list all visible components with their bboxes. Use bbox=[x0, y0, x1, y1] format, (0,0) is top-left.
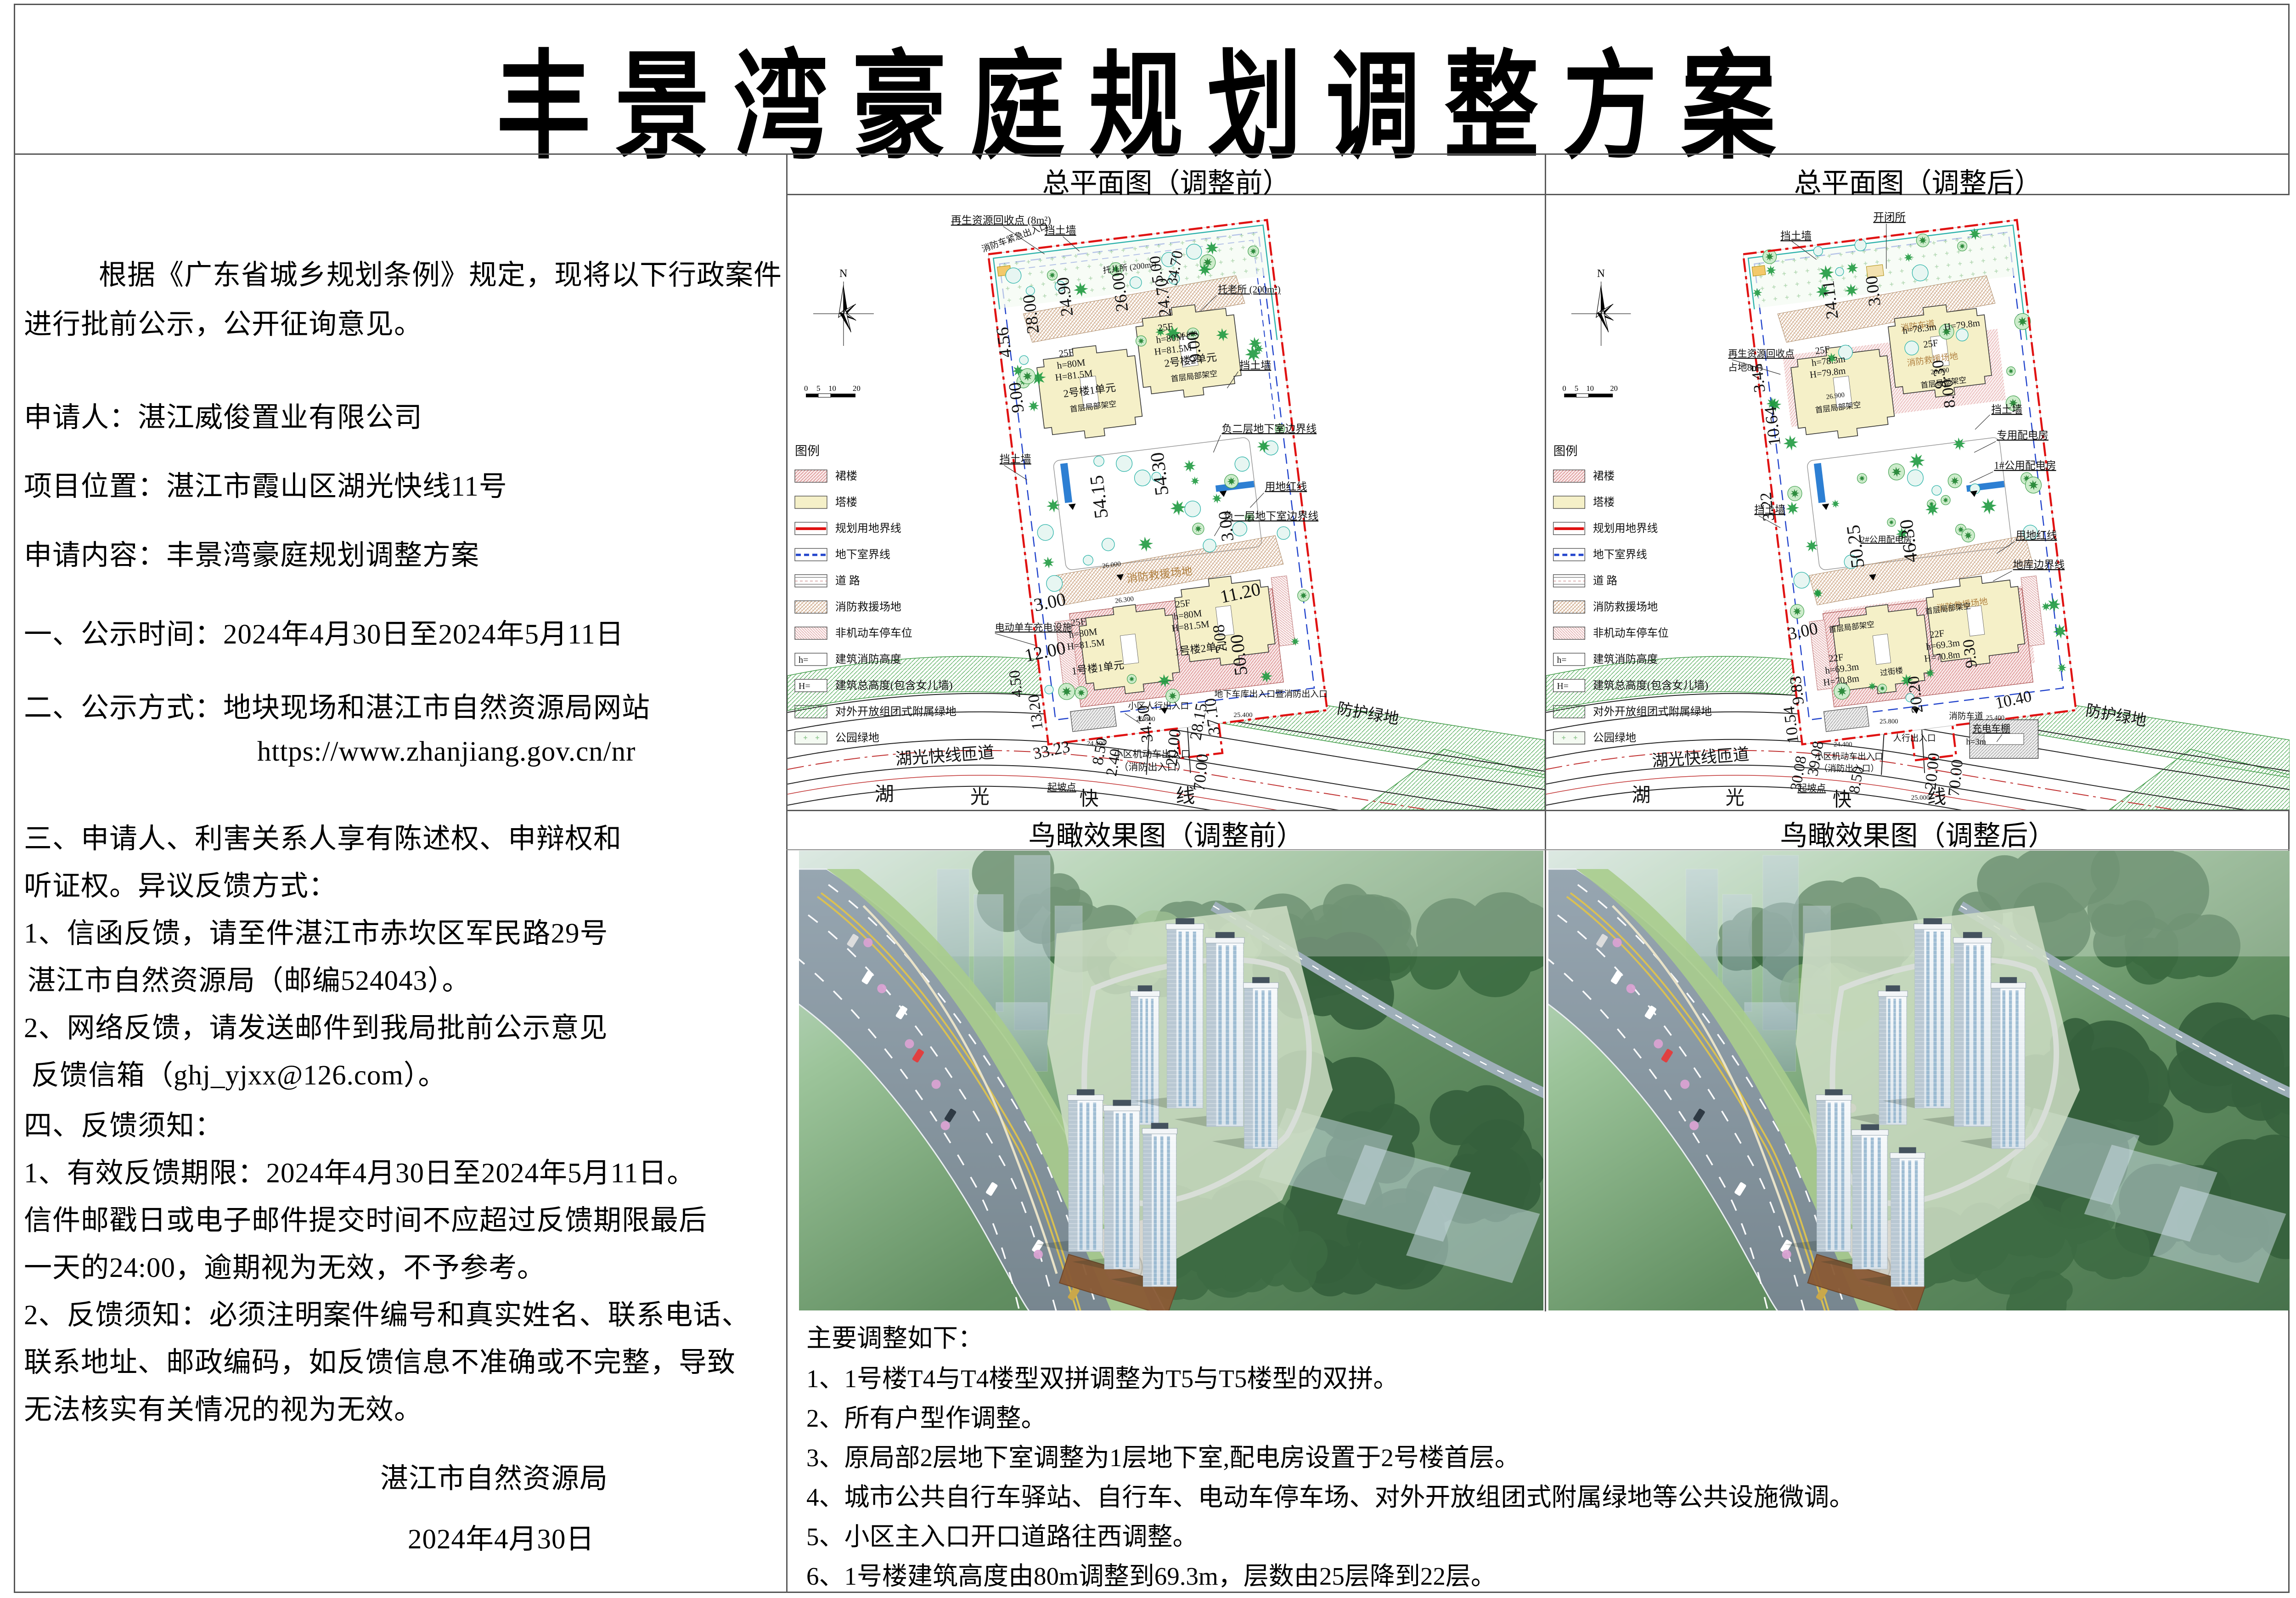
svg-text:对外开放组团式附属绿地: 对外开放组团式附属绿地 bbox=[835, 706, 957, 718]
legend-item: 消防救援场地 bbox=[1553, 601, 1658, 613]
plan-annotation: 挡土墙 bbox=[1045, 225, 1076, 236]
svg-text:h=: h= bbox=[1557, 655, 1567, 665]
plan-annotation: 70.00 bbox=[1190, 753, 1212, 792]
legend-item: 规划用地界线 bbox=[795, 522, 901, 535]
panel-title-render-before: 鸟瞰效果图（调整前） bbox=[788, 813, 1545, 853]
plan-annotation: 人行出入口 bbox=[1893, 733, 1936, 743]
notice-line: 申请人：湛江威俊置业有限公司 bbox=[24, 394, 422, 435]
legend-item: 公园绿地 bbox=[795, 732, 879, 744]
adjustment-item: 1、1号楼T4与T4楼型双拼调整为T5与T5楼型的双拼。 bbox=[806, 1358, 1398, 1395]
plan-annotation: 25.400 bbox=[1233, 711, 1252, 719]
panel-title-site-after: 总平面图（调整后） bbox=[1546, 161, 2290, 201]
plan-annotation: 挡土墙 bbox=[1239, 360, 1271, 371]
plan-annotation: 湖 bbox=[1632, 785, 1650, 806]
svg-text:非机动车停车位: 非机动车停车位 bbox=[1593, 627, 1669, 639]
svg-text:N: N bbox=[1597, 268, 1605, 280]
svg-text:地下室界线: 地下室界线 bbox=[1593, 548, 1647, 561]
plan-annotation: 25F bbox=[1175, 597, 1191, 610]
svg-text:规划用地界线: 规划用地界线 bbox=[835, 522, 901, 535]
plan-annotation: 用地红线 bbox=[2015, 530, 2057, 541]
panel-title-render-after: 鸟瞰效果图（调整后） bbox=[1546, 813, 2290, 853]
notice-line: 二、公示方式：地块现场和湛江市自然资源局网站 bbox=[24, 684, 650, 725]
plan-annotation: 1#公用配电房 bbox=[1994, 460, 2056, 471]
svg-text:20: 20 bbox=[1610, 384, 1618, 393]
plan-annotation: 25F bbox=[1815, 344, 1831, 356]
plan-annotation: 挡土墙 bbox=[1991, 404, 2022, 415]
notice-line: 湛江市自然资源局（邮编524043）。 bbox=[28, 957, 471, 998]
plan-annotation: 22F bbox=[1828, 652, 1844, 664]
plan-annotation: 9.00 bbox=[1005, 381, 1028, 414]
svg-text:裙楼: 裙楼 bbox=[1593, 470, 1615, 482]
adjustment-item: 6、1号楼建筑高度由80m调整到69.3m，层数由25层降到22层。 bbox=[806, 1555, 1496, 1592]
plan-annotation: 起坡点 bbox=[1047, 782, 1076, 793]
plan-annotation: 地库边界线 bbox=[2013, 559, 2065, 570]
adjustment-item: 4、城市公共自行车驿站、自行车、电动车停车场、对外开放组团式附属绿地等公共设施微… bbox=[806, 1476, 1855, 1513]
plan-annotation: 4.50 bbox=[1006, 669, 1026, 699]
adjustments-heading: 主要调整如下： bbox=[806, 1317, 983, 1354]
plan-annotation: 光 bbox=[1726, 787, 1745, 808]
notice-line: 申请内容：丰景湾豪庭规划调整方案 bbox=[24, 532, 479, 573]
plan-annotation: 9.00 bbox=[1183, 331, 1206, 363]
legend-item: 地下室界线 bbox=[795, 548, 890, 561]
plan-annotation: 25F bbox=[1058, 346, 1074, 359]
notice-line: 1、有效反馈期限：2024年4月30日至2024年5月11日。 bbox=[24, 1150, 695, 1191]
svg-text:5: 5 bbox=[1575, 384, 1578, 393]
svg-text:建筑消防高度: 建筑消防高度 bbox=[1593, 653, 1658, 666]
notice-line: 进行批前公示，公开征询意见。 bbox=[24, 301, 422, 342]
notice-line: 反馈信箱（ghj_yjxx@126.com）。 bbox=[31, 1052, 446, 1093]
legend-item: 公园绿地 bbox=[1553, 732, 1637, 744]
plan-annotation: 22F bbox=[1929, 628, 1945, 640]
plan-annotation: 挡土墙 bbox=[1000, 453, 1031, 465]
aerial-render-before bbox=[799, 851, 1543, 1310]
svg-text:建筑总高度(包含女儿墙): 建筑总高度(包含女儿墙) bbox=[1593, 679, 1708, 692]
notice-body: 根据《广东省城乡规划条例》规定，现将以下行政案件进行批前公示，公开征询意见。申请… bbox=[0, 0, 786, 1598]
plan-annotation: 负二层地下室边界线 bbox=[1221, 423, 1317, 435]
plan-annotation: 3.00 bbox=[1215, 510, 1238, 542]
legend-item: 裙楼 bbox=[795, 470, 857, 482]
adjustment-item: 3、原局部2层地下室调整为1层地下室,配电房设置于2号楼首层。 bbox=[806, 1437, 1520, 1474]
notice-line: 项目位置：湛江市霞山区湖光快线11号 bbox=[24, 463, 507, 504]
svg-text:建筑总高度(包含女儿墙): 建筑总高度(包含女儿墙) bbox=[835, 679, 953, 692]
svg-text:规划用地界线: 规划用地界线 bbox=[1593, 522, 1658, 535]
plan-annotation: 开闭所 bbox=[1873, 211, 1906, 224]
notice-line: 一、公示时间：2024年4月30日至2024年5月11日 bbox=[24, 611, 624, 652]
notice-line: 根据《广东省城乡规划条例》规定，现将以下行政案件 bbox=[99, 252, 782, 293]
svg-text:图例: 图例 bbox=[1553, 444, 1578, 458]
notice-line: 联系地址、邮政编码，如反馈信息不准确或不完整，导致 bbox=[24, 1339, 736, 1380]
notice-line: 2、网络反馈，请发送邮件到我局批前公示意见 bbox=[24, 1005, 608, 1045]
svg-text:N: N bbox=[839, 268, 847, 280]
site-plan-before: 图例裙楼塔楼规划用地界线地下室界线道 路消防救援场地非机动车停车位h=建筑消防高… bbox=[788, 195, 1545, 810]
legend-item: 消防救援场地 bbox=[795, 601, 901, 613]
svg-text:0: 0 bbox=[804, 384, 808, 393]
svg-text:图例: 图例 bbox=[795, 444, 820, 458]
plan-annotation: 3.45 bbox=[1747, 362, 1769, 393]
plan-annotation: 4.56 bbox=[993, 326, 1016, 359]
legend-item: 对外开放组团式附属绿地 bbox=[1553, 706, 1712, 718]
plan-annotation: 消防车道 bbox=[1949, 711, 1983, 721]
svg-text:对外开放组团式附属绿地: 对外开放组团式附属绿地 bbox=[1593, 706, 1712, 718]
legend-item: 裙楼 bbox=[1553, 470, 1615, 482]
plan-annotation: 8.00 bbox=[1937, 378, 1959, 409]
plan-annotation: 9.30 bbox=[1959, 638, 1981, 669]
svg-text:消防救援场地: 消防救援场地 bbox=[835, 601, 901, 613]
divider-plan-bottom bbox=[786, 810, 2290, 811]
notice-line: 一天的24:00，逾期视为无效，不予参考。 bbox=[24, 1244, 546, 1285]
svg-text:H=: H= bbox=[1557, 681, 1569, 691]
notice-line: 无法核实有关情况的视为无效。 bbox=[24, 1386, 422, 1427]
svg-text:裙楼: 裙楼 bbox=[835, 470, 857, 482]
plan-annotation: 湖 bbox=[875, 784, 894, 805]
notice-line: 四、反馈须知： bbox=[24, 1102, 223, 1143]
plan-annotation: 25.400 bbox=[1986, 714, 2004, 722]
svg-text:非机动车停车位: 非机动车停车位 bbox=[835, 627, 912, 639]
plan-annotation: 再生资源回收点 bbox=[1728, 349, 1794, 359]
plan-annotation: 挡土墙 bbox=[1780, 230, 1812, 242]
notice-line: 听证权。异议反馈方式： bbox=[24, 863, 337, 903]
plan-annotation: 光 bbox=[970, 787, 990, 808]
notice-line: https://www.zhanjiang.gov.cn/nr bbox=[257, 736, 636, 768]
svg-text:道 路: 道 路 bbox=[835, 575, 860, 587]
plan-annotation: 专用配电房 bbox=[1997, 429, 2048, 441]
legend-item: 地下室界线 bbox=[1553, 548, 1647, 561]
svg-text:H=: H= bbox=[799, 681, 810, 691]
svg-text:0: 0 bbox=[1562, 384, 1566, 393]
plan-annotation: 25F bbox=[1070, 615, 1086, 628]
plan-annotation: 充电车棚 bbox=[1972, 723, 2010, 734]
svg-text:地下室界线: 地下室界线 bbox=[835, 548, 890, 561]
legend-item: 非机动车停车位 bbox=[795, 627, 912, 639]
legend-item: H=建筑总高度(包含女儿墙) bbox=[795, 679, 953, 692]
plan-annotation: 9.83 bbox=[1786, 675, 1807, 706]
notice-line: 湛江市自然资源局 bbox=[380, 1455, 608, 1496]
adjustment-item: 2、所有户型作调整。 bbox=[806, 1397, 1047, 1434]
svg-text:20: 20 bbox=[853, 384, 861, 393]
plan-annotation: 25F bbox=[1157, 321, 1173, 333]
notice-line: 1、信函反馈，请至件湛江市赤坎区军民路29号 bbox=[24, 910, 608, 951]
svg-text:塔楼: 塔楼 bbox=[835, 496, 857, 508]
plan-annotation: 电动单车充电设施 bbox=[995, 622, 1072, 633]
legend-item: 非机动车停车位 bbox=[1553, 627, 1669, 639]
svg-text:h=: h= bbox=[799, 655, 808, 665]
svg-text:公园绿地: 公园绿地 bbox=[1593, 732, 1636, 744]
legend-item: H=建筑总高度(包含女儿墙) bbox=[1553, 679, 1708, 692]
notice-line: 2024年4月30日 bbox=[408, 1516, 595, 1557]
plan-annotation: 24.400 bbox=[1834, 741, 1852, 748]
plan-annotation: 负一层地下室边界线 bbox=[1223, 510, 1318, 522]
svg-text:公园绿地: 公园绿地 bbox=[835, 732, 879, 744]
plan-annotation: 70.00 bbox=[1944, 758, 1966, 797]
plan-annotation: 20.00 bbox=[1921, 752, 1943, 791]
legend-item: 塔楼 bbox=[1553, 496, 1615, 508]
aerial-render-after bbox=[1548, 851, 2290, 1310]
plan-annotation: 托老所 (200m²) bbox=[1218, 284, 1280, 295]
plan-annotation: h=3m bbox=[1966, 737, 1986, 747]
plan-annotation: 地下车库出入口暨消防出入口 bbox=[1214, 689, 1328, 699]
plan-annotation: 快 bbox=[1080, 789, 1099, 810]
public-notice-board: 丰景湾豪庭规划调整方案 总平面图（调整前） 总平面图（调整后） 鸟瞰效果图（调整… bbox=[0, 0, 2296, 1598]
plan-annotation: 3.22 bbox=[1756, 491, 1778, 522]
svg-text:5: 5 bbox=[816, 384, 820, 393]
plan-annotation: 再生资源回收点 (8m²) bbox=[951, 215, 1051, 226]
panel-title-site-before: 总平面图（调整前） bbox=[788, 161, 1545, 201]
legend-item: 塔楼 bbox=[795, 496, 857, 508]
legend-item: h=建筑消防高度 bbox=[795, 653, 901, 666]
plan-annotation: 3.00 bbox=[1862, 275, 1885, 307]
adjustment-item: 5、小区主入口开口道路往西调整。 bbox=[806, 1516, 1198, 1553]
plan-annotation: 25F bbox=[1923, 338, 1939, 350]
svg-text:道 路: 道 路 bbox=[1593, 575, 1617, 587]
notice-line: 2、反馈须知：必须注明案件编号和真实姓名、联系电话、 bbox=[24, 1292, 750, 1333]
svg-text:塔楼: 塔楼 bbox=[1593, 496, 1615, 508]
plan-annotation: 用地红线 bbox=[1265, 481, 1307, 492]
plan-annotation: 25.800 bbox=[1880, 718, 1898, 725]
svg-text:消防救援场地: 消防救援场地 bbox=[1593, 601, 1658, 613]
svg-text:10: 10 bbox=[1586, 384, 1594, 393]
notice-line: 信件邮戳日或电子邮件提交时间不应超过反馈期限最后 bbox=[24, 1197, 707, 1238]
legend-item: h=建筑消防高度 bbox=[1553, 653, 1658, 666]
plan-annotation: 20.00 bbox=[1162, 728, 1184, 767]
site-plan-after: 图例裙楼塔楼规划用地界线地下室界线道 路消防救援场地非机动车停车位h=建筑消防高… bbox=[1546, 195, 2290, 810]
notice-line: 三、申请人、利害关系人享有陈述权、申辩权和 bbox=[24, 815, 622, 856]
svg-text:10: 10 bbox=[828, 384, 836, 393]
legend-item: 对外开放组团式附属绿地 bbox=[795, 706, 957, 718]
svg-text:建筑消防高度: 建筑消防高度 bbox=[835, 653, 901, 666]
legend-item: 规划用地界线 bbox=[1553, 522, 1658, 535]
